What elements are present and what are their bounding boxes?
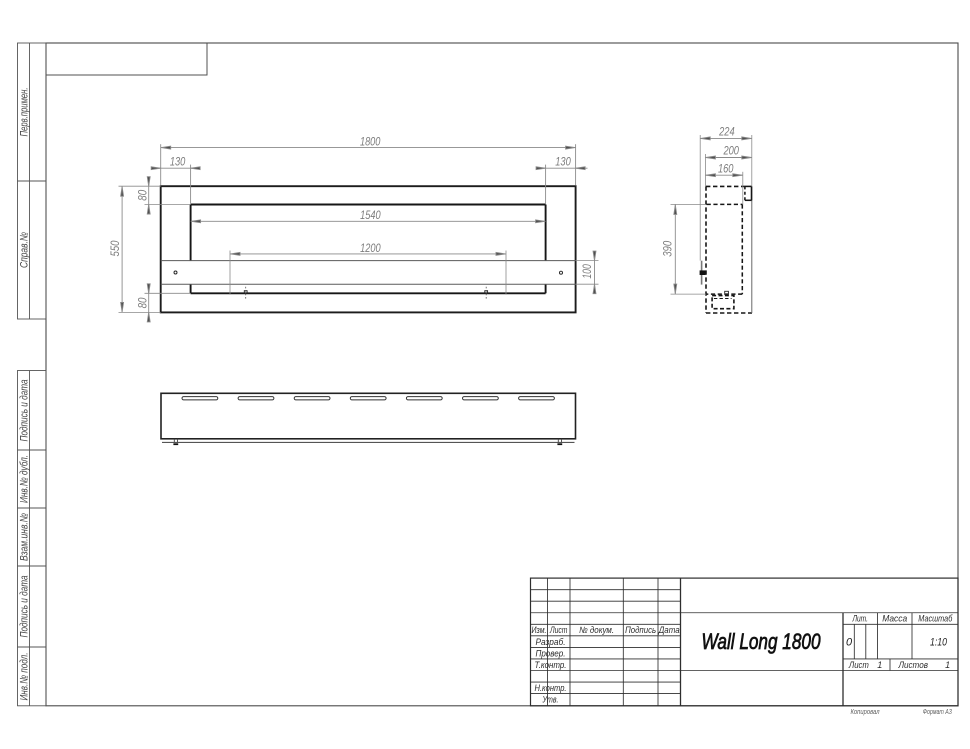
- svg-text:Лист: Лист: [549, 625, 568, 635]
- svg-text:Инв.№ подл.: Инв.№ подл.: [19, 653, 31, 701]
- svg-text:Масштаб: Масштаб: [918, 613, 953, 623]
- svg-text:390: 390: [661, 241, 675, 257]
- svg-text:130: 130: [555, 155, 571, 169]
- svg-text:Н.контр.: Н.контр.: [535, 683, 567, 693]
- svg-text:Масса: Масса: [882, 613, 907, 623]
- svg-text:Лист: Лист: [848, 660, 869, 670]
- svg-text:1:10: 1:10: [930, 637, 948, 649]
- svg-text:Провер.: Провер.: [536, 648, 566, 658]
- svg-text:Изм.: Изм.: [532, 625, 547, 635]
- svg-text:80: 80: [135, 190, 149, 201]
- svg-text:Перв.примен.: Перв.примен.: [19, 88, 31, 137]
- svg-text:80: 80: [135, 297, 149, 308]
- svg-text:224: 224: [718, 125, 735, 139]
- svg-text:Утв.: Утв.: [542, 695, 559, 705]
- svg-text:0: 0: [846, 637, 853, 649]
- svg-text:Подпись и дата: Подпись и дата: [19, 576, 31, 638]
- svg-text:Дата: Дата: [658, 625, 680, 635]
- svg-text:Взам.инв.№: Взам.инв.№: [19, 513, 31, 561]
- svg-text:Копировал: Копировал: [851, 707, 881, 716]
- svg-text:1200: 1200: [360, 241, 381, 255]
- svg-text:Подпись: Подпись: [625, 625, 656, 635]
- svg-text:100: 100: [580, 264, 594, 279]
- svg-text:Разраб.: Разраб.: [536, 637, 566, 647]
- svg-text:550: 550: [108, 240, 122, 256]
- svg-text:Лит.: Лит.: [852, 613, 868, 623]
- svg-text:Инв.№ дубл.: Инв.№ дубл.: [19, 455, 31, 503]
- svg-text:160: 160: [718, 161, 734, 175]
- svg-text:1: 1: [877, 660, 882, 670]
- svg-text:130: 130: [170, 155, 186, 169]
- svg-text:1800: 1800: [360, 134, 381, 148]
- svg-text:1: 1: [945, 660, 950, 670]
- svg-text:Подпись и дата: Подпись и дата: [19, 380, 31, 442]
- svg-text:1540: 1540: [360, 208, 381, 222]
- svg-text:Листов: Листов: [898, 660, 929, 670]
- svg-text:№ докум.: № докум.: [579, 625, 614, 635]
- svg-text:Справ.№: Справ.№: [19, 232, 31, 268]
- svg-text:Формат А3: Формат А3: [923, 707, 953, 716]
- svg-text:200: 200: [723, 144, 740, 158]
- svg-text:Т.контр.: Т.контр.: [535, 660, 567, 670]
- svg-text:Wall Long 1800: Wall Long 1800: [702, 629, 822, 654]
